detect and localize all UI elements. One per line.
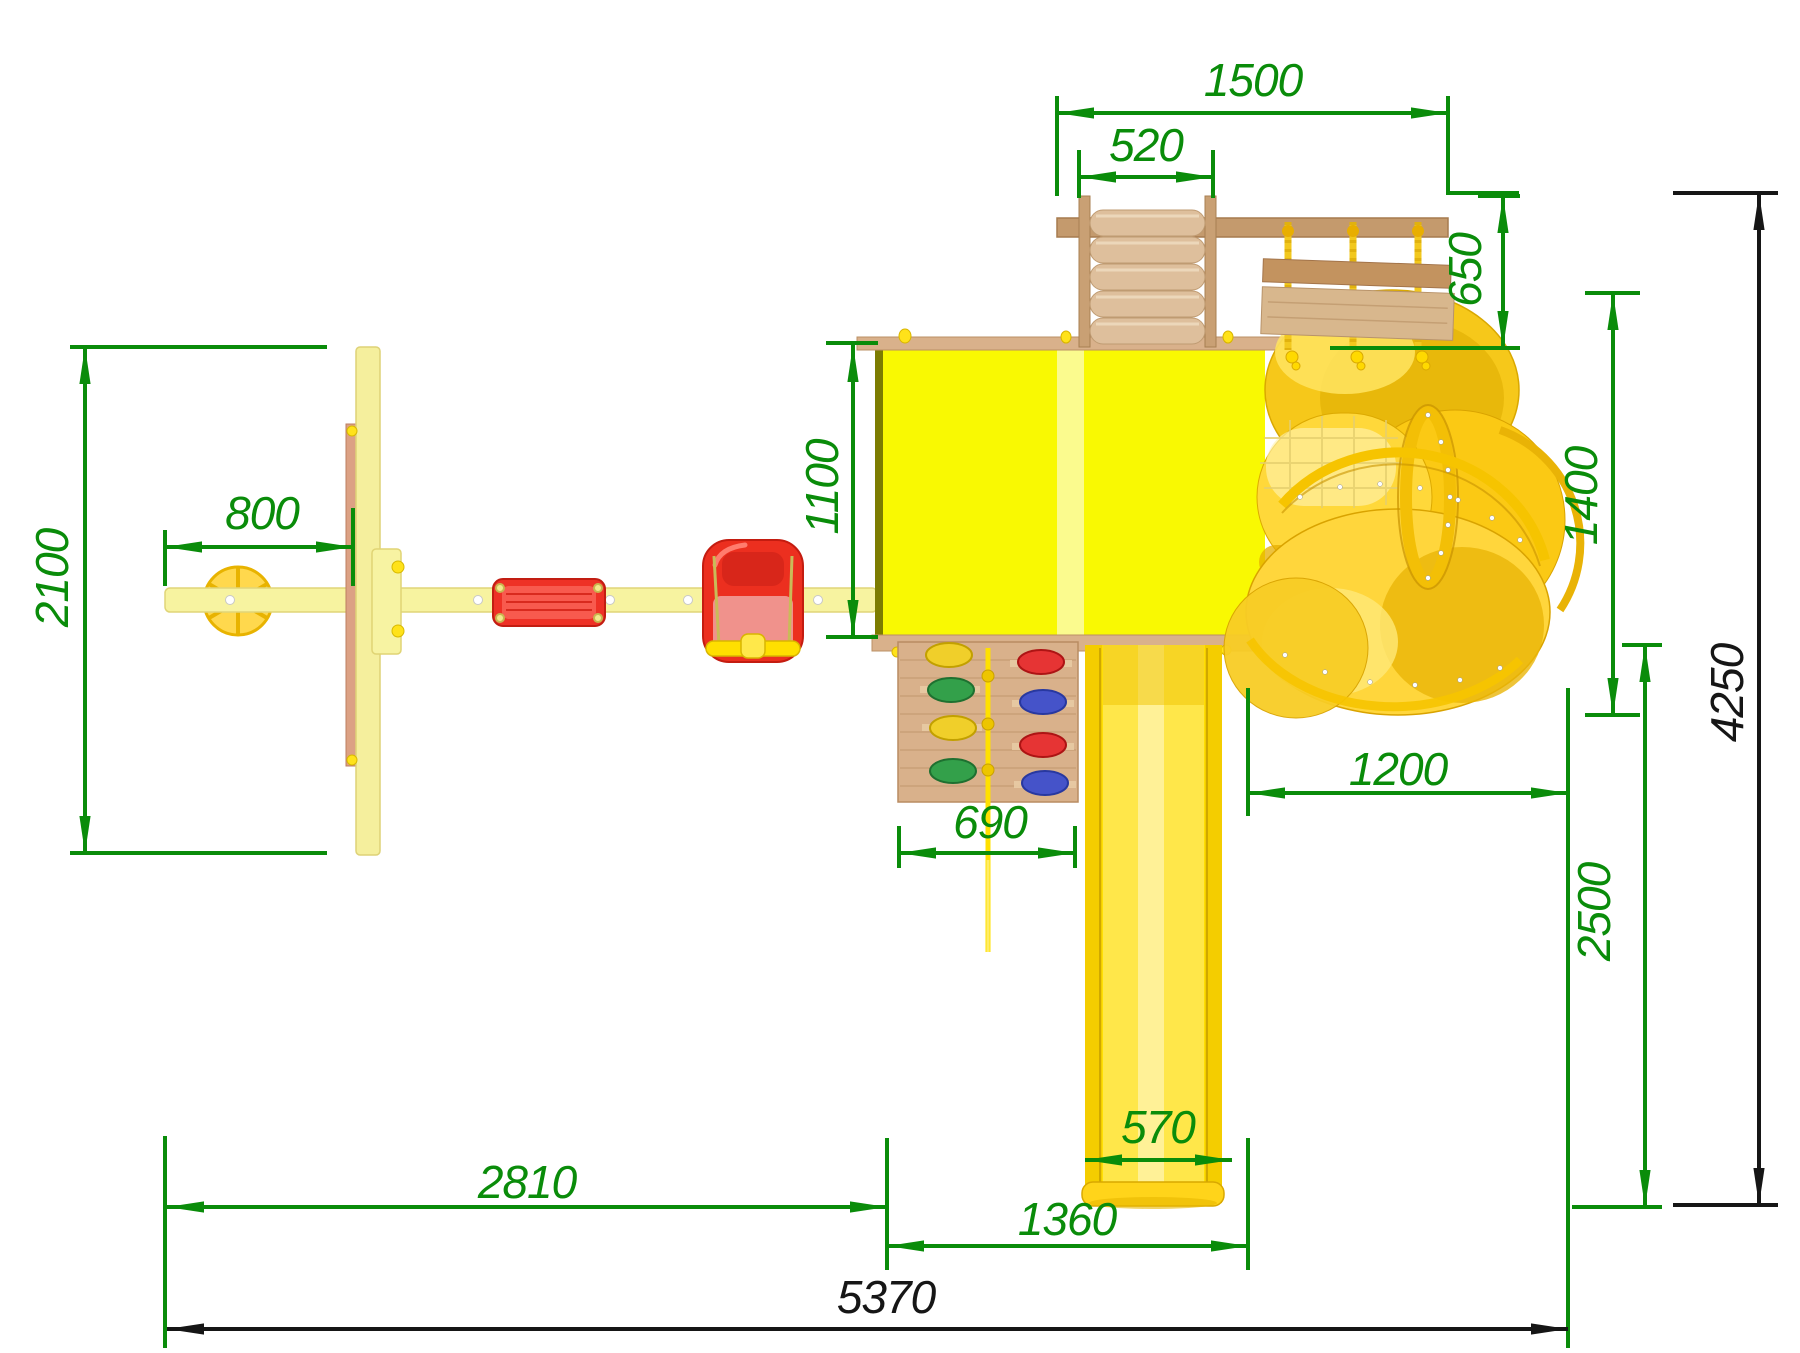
- dim-climb-ladder-width: 520: [1109, 122, 1183, 168]
- dim-bridge-depth: 650: [1442, 233, 1488, 307]
- dim-spiral-slide-width: 1200: [1349, 746, 1447, 792]
- dim-slide-bay-width: 1360: [1018, 1196, 1116, 1242]
- installation-drawing: 1500 520 650 1400 2500 4250 2100 800 110…: [0, 0, 1800, 1353]
- climbing-ramp: [1079, 196, 1216, 347]
- dim-overall-depth: 4250: [1704, 644, 1750, 742]
- playground-structure-graphic: [0, 0, 1800, 1353]
- baby-swing-seat: [703, 540, 803, 662]
- dim-swing-frame-length: 2100: [29, 529, 75, 627]
- dim-overall-width: 5370: [837, 1274, 935, 1320]
- swing-frame: [346, 347, 404, 855]
- spiral-tube-slide: [1224, 290, 1580, 718]
- dim-slide-exit-depth: 2500: [1571, 863, 1617, 961]
- flat-swing-seat: [493, 579, 605, 626]
- dim-platform-depth: 1100: [799, 440, 845, 535]
- dim-rock-wall-width: 690: [953, 799, 1027, 845]
- dim-slide-width: 570: [1121, 1104, 1195, 1150]
- dim-swing-hanger-offset: 800: [225, 490, 299, 536]
- dim-upper-walkway-span: 1500: [1204, 57, 1302, 103]
- dim-spiral-slide-depth: 1400: [1558, 447, 1604, 545]
- dim-swing-bay-width: 2810: [478, 1159, 576, 1205]
